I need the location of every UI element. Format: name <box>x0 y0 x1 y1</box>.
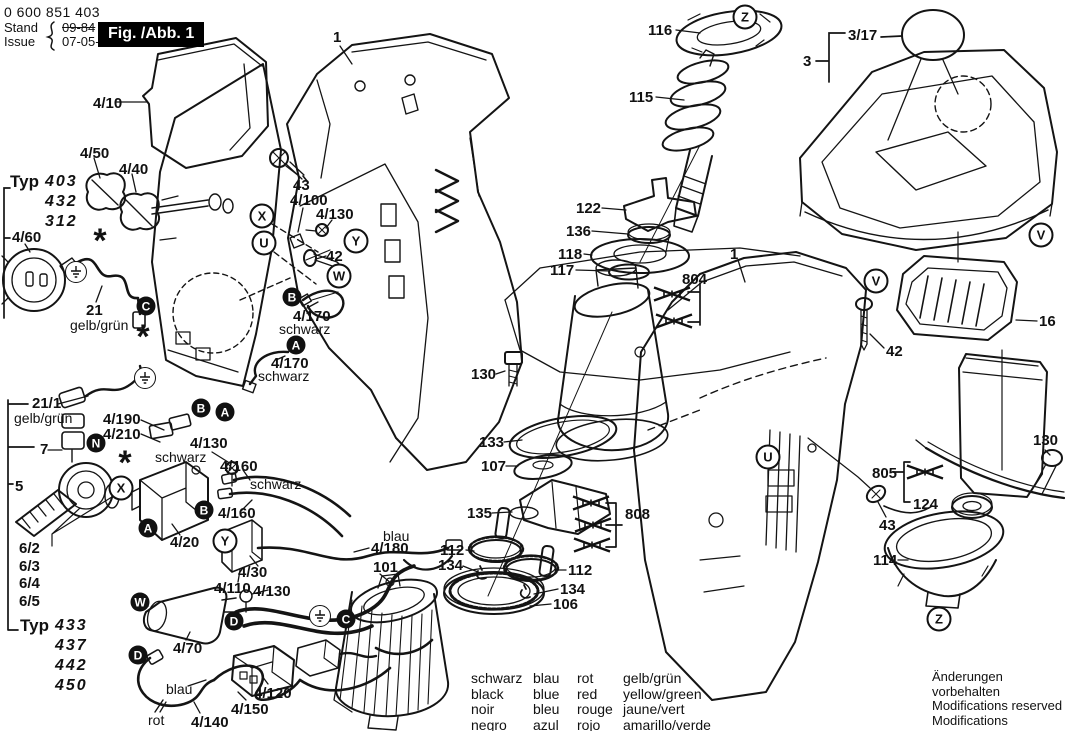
typ-model-value: 433 <box>55 616 88 636</box>
legend-cell: jaune/vert <box>623 702 743 718</box>
earth-ground-icon <box>134 367 156 389</box>
legend-cell: negro <box>471 718 533 731</box>
part-label-21-1: 21/1 <box>32 396 61 411</box>
part-label-135: 135 <box>467 506 492 521</box>
reference-badge-A: A <box>216 403 235 422</box>
exploded-parts-diagram: 0 600 851 403 Stand Issue 09-84 07-05-15… <box>0 0 1065 731</box>
part-label-schwarz: schwarz <box>279 322 330 336</box>
part-label-gelb-gr-n: gelb/grün <box>70 318 128 332</box>
asterisk-marker: * <box>93 233 106 249</box>
reference-badge-A: A <box>139 519 158 538</box>
part-label-4-180: 4/180 <box>371 541 409 556</box>
part-label-116: 116 <box>648 23 672 38</box>
part-label-4-110: 4/110 <box>214 581 251 596</box>
part-label-4-150: 4/150 <box>231 702 269 717</box>
part-label-1: 1 <box>333 30 341 45</box>
reference-badge-C: C <box>137 297 156 316</box>
part-label-112: 112 <box>568 563 592 578</box>
part-label-114: 114 <box>873 553 897 568</box>
part-label-134: 134 <box>438 558 463 573</box>
reference-badge-C: C <box>337 610 356 629</box>
legend-cell: azul <box>533 718 577 731</box>
legend-cell: black <box>471 687 533 703</box>
typ-model-value: 437 <box>55 636 88 656</box>
part-label-42: 42 <box>886 344 903 359</box>
typ-model-value: 432 <box>45 192 78 212</box>
modification-notices: Änderungen vorbehaltenModifications rese… <box>932 670 1065 731</box>
part-label-6-3: 6/3 <box>19 559 40 574</box>
reference-badge-Y: Y <box>344 229 369 254</box>
part-label-43: 43 <box>879 518 896 533</box>
reference-badge-Z: Z <box>733 5 758 30</box>
part-label-21: 21 <box>86 303 103 318</box>
document-part-number: 0 600 851 403 <box>4 4 100 20</box>
crossed-out-part-804 <box>652 286 692 303</box>
part-label-124: 124 <box>913 497 938 512</box>
legend-cell: rot <box>577 671 623 687</box>
reference-badge-N: N <box>87 434 106 453</box>
part-label-4-10: 4/10 <box>93 96 122 111</box>
asterisk-marker: * <box>136 329 149 345</box>
part-label-6-2: 6/2 <box>19 541 40 556</box>
legend-cell: blue <box>533 687 577 703</box>
legend-cell: yellow/green <box>623 687 743 703</box>
modification-notice-line: Modifications reservees <box>932 714 1065 731</box>
earth-ground-icon <box>65 261 87 283</box>
part-label-118: 118 <box>558 247 582 262</box>
typ-model-value: 442 <box>55 656 88 676</box>
reference-badge-B: B <box>192 399 211 418</box>
reference-badge-U: U <box>252 231 277 256</box>
issue-label: Issue <box>4 35 38 49</box>
reference-badge-D: D <box>225 612 244 631</box>
reference-badge-D: D <box>129 646 148 665</box>
part-label-6-4: 6/4 <box>19 576 40 591</box>
part-label-122: 122 <box>576 201 601 216</box>
part-label-schwarz: schwarz <box>258 369 309 383</box>
reference-badge-A: A <box>287 336 306 355</box>
part-label-4-160: 4/160 <box>218 506 256 521</box>
modification-notice-line: Modifications reserved <box>932 699 1065 714</box>
legend-cell: gelb/grün <box>623 671 743 687</box>
part-label-107: 107 <box>481 459 506 474</box>
reference-badge-X: X <box>250 204 275 229</box>
legend-cell: blau <box>533 671 577 687</box>
crossed-out-part-805 <box>905 464 945 481</box>
color-legend: schwarzblaurotgelb/grünblackblueredyello… <box>471 671 743 731</box>
part-label-112: 112 <box>440 543 464 558</box>
reference-badge-Y: Y <box>213 529 238 554</box>
legend-cell: rouge <box>577 702 623 718</box>
part-label-130: 130 <box>471 367 496 382</box>
typ-models: 433437442450 <box>55 616 88 696</box>
part-label-101: 101 <box>373 560 398 575</box>
part-label-1: 1 <box>730 247 738 262</box>
part-label-42: 42 <box>326 249 343 264</box>
part-label-115: 115 <box>629 90 653 105</box>
reference-badge-W: W <box>327 264 352 289</box>
part-label-gelb-gr-n: gelb/grün <box>14 411 72 425</box>
part-label-134: 134 <box>560 582 585 597</box>
modification-notice-line: Änderungen vorbehalten <box>932 670 1065 699</box>
part-label-43: 43 <box>293 178 310 193</box>
part-label-4-20: 4/20 <box>170 535 199 550</box>
part-label-schwarz: schwarz <box>250 477 301 491</box>
typ-models: 403432312 <box>45 172 78 232</box>
crossed-out-part-808 <box>571 495 611 512</box>
part-label-805: 805 <box>872 466 897 481</box>
part-label-blau: blau <box>166 682 192 696</box>
part-label-4-160: 4/160 <box>220 459 258 474</box>
part-label-schwarz: schwarz <box>155 450 206 464</box>
part-label-133: 133 <box>479 435 504 450</box>
part-label-6-5: 6/5 <box>19 594 40 609</box>
part-label-136: 136 <box>566 224 591 239</box>
legend-cell: red <box>577 687 623 703</box>
part-label-4-70: 4/70 <box>173 641 202 656</box>
diagram-line-art <box>0 0 1065 731</box>
part-label-3-17: 3/17 <box>848 28 877 43</box>
part-label-3: 3 <box>803 54 811 69</box>
typ-group-403-432-312: Typ403432312 <box>10 172 78 232</box>
part-label-4-40: 4/40 <box>119 162 148 177</box>
part-label-16: 16 <box>1039 314 1056 329</box>
typ-model-value: 312 <box>45 212 78 232</box>
typ-model-value: 403 <box>45 172 78 192</box>
typ-word: Typ <box>20 616 49 696</box>
part-label-4-120: 4/120 <box>254 686 292 701</box>
part-label-4-190: 4/190 <box>103 412 141 427</box>
figure-label: Fig. /Abb. 1 <box>98 22 204 47</box>
reference-badge-W: W <box>131 593 150 612</box>
part-label-106: 106 <box>553 597 578 612</box>
reference-badge-V: V <box>864 269 889 294</box>
typ-group-433-437-442-450: Typ433437442450 <box>20 616 88 696</box>
part-label-130: 130 <box>1033 433 1058 448</box>
part-label-4-140: 4/140 <box>191 715 229 730</box>
earth-ground-icon <box>309 605 331 627</box>
stand-issue-labels: Stand Issue <box>4 21 38 49</box>
typ-model-value: 450 <box>55 676 88 696</box>
part-label-rot: rot <box>148 713 164 727</box>
part-label-4-210: 4/210 <box>103 427 141 442</box>
legend-cell: rojo <box>577 718 623 731</box>
legend-cell: bleu <box>533 702 577 718</box>
part-label-7: 7 <box>40 442 48 457</box>
legend-cell: noir <box>471 702 533 718</box>
stand-label: Stand <box>4 21 38 35</box>
legend-cell: schwarz <box>471 671 533 687</box>
part-label-5: 5 <box>15 479 23 494</box>
part-label-117: 117 <box>550 263 574 278</box>
part-label-4-60: 4/60 <box>12 230 41 245</box>
part-label-4-130: 4/130 <box>253 584 291 599</box>
part-label-4-130: 4/130 <box>190 436 228 451</box>
part-label-4-50: 4/50 <box>80 146 109 161</box>
part-label-808: 808 <box>625 507 650 522</box>
part-label-4-30: 4/30 <box>238 565 267 580</box>
asterisk-marker: * <box>118 455 131 471</box>
reference-badge-B: B <box>195 501 214 520</box>
part-label-4-130: 4/130 <box>316 207 354 222</box>
crossed-out-part-808 <box>573 517 613 534</box>
crossed-out-part-804 <box>654 313 694 330</box>
legend-cell: amarillo/verde <box>623 718 743 731</box>
reference-badge-Z: Z <box>927 607 952 632</box>
reference-badge-U: U <box>756 445 781 470</box>
crossed-out-part-808 <box>572 537 612 554</box>
typ-word: Typ <box>10 172 39 232</box>
reference-badge-B: B <box>283 288 302 307</box>
reference-badge-V: V <box>1029 223 1054 248</box>
